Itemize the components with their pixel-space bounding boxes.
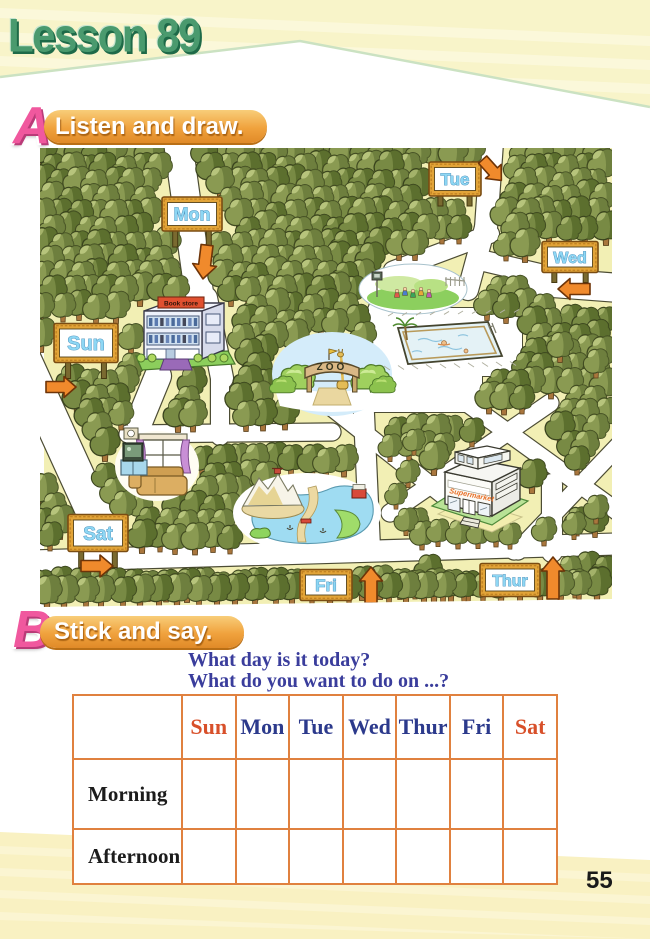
svg-text:Sun: Sun [67, 333, 105, 355]
svg-text:Mon: Mon [174, 204, 211, 224]
svg-text:Wed: Wed [553, 250, 586, 267]
svg-text:Thur: Thur [492, 573, 528, 590]
svg-text:Fri: Fri [315, 576, 337, 595]
svg-text:Tue: Tue [441, 170, 470, 189]
svg-text:Book store: Book store [164, 301, 198, 308]
svg-text:Sat: Sat [83, 524, 113, 545]
svg-text:ZOO: ZOO [317, 362, 348, 373]
